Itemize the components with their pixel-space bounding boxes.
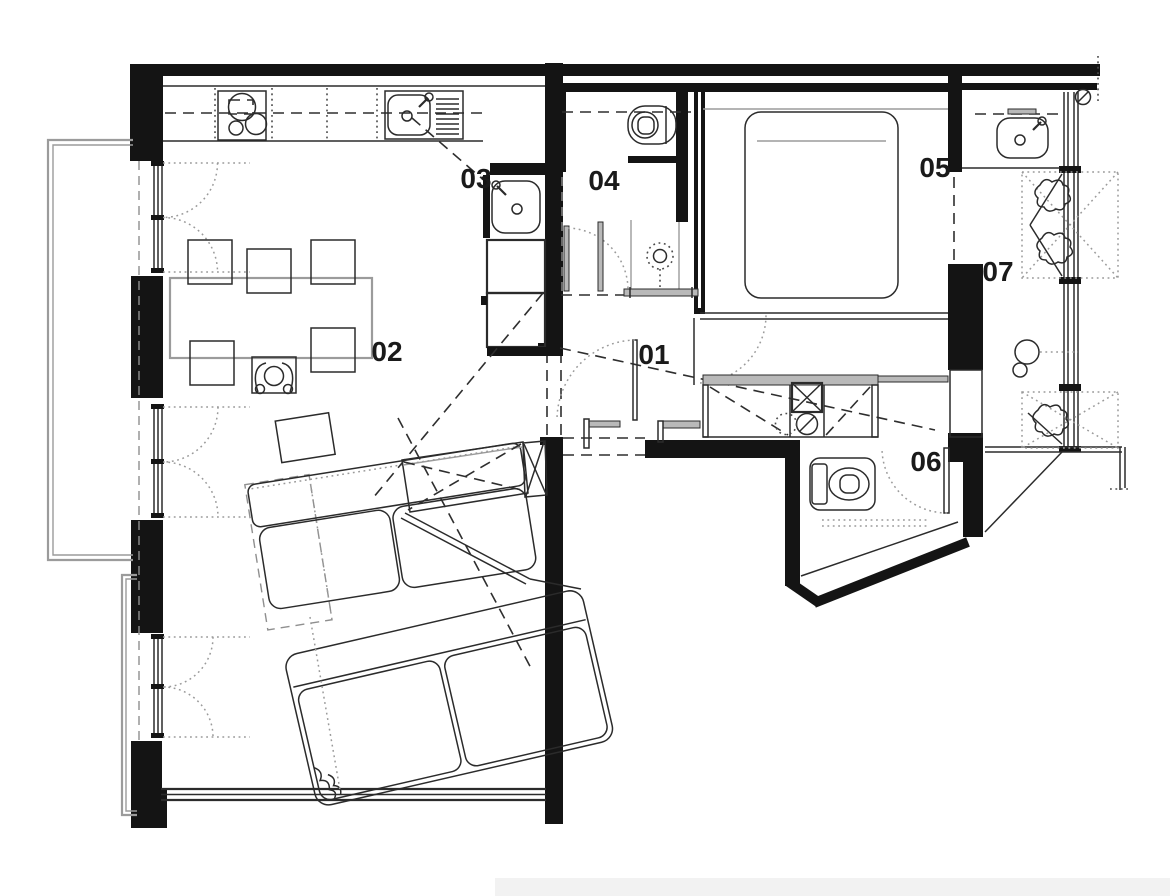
- side-table: [523, 441, 547, 497]
- plant-icon: [1035, 180, 1070, 211]
- walls: [130, 56, 1130, 828]
- room-label-bedroom: 05: [919, 152, 950, 183]
- room-label-bathroom: 04: [588, 165, 620, 196]
- casement-window-icon: [151, 161, 250, 273]
- dining-set: [170, 240, 372, 394]
- utility-basin-icon: [492, 181, 540, 233]
- floor-plan: 01 02 03 04 05 06 07: [0, 0, 1170, 896]
- loggia: [962, 90, 1118, 533]
- washing-machine-icon: [792, 383, 822, 412]
- seated-person-icon: [252, 357, 296, 394]
- room-label-loggia: 07: [982, 256, 1013, 287]
- room-label-hallway: 01: [638, 339, 669, 370]
- drainer-icon: [436, 99, 459, 134]
- kitchen-sink-icon: [385, 91, 463, 139]
- dryer-icon: [776, 414, 818, 435]
- bathroom-door: [564, 222, 628, 291]
- toilet-icon-2: [810, 458, 875, 510]
- room-label-wc: 06: [910, 446, 941, 477]
- bench: [624, 287, 698, 298]
- bedroom: [694, 109, 948, 385]
- plant-window-bay-1: [1022, 172, 1118, 278]
- plant-window-bay-2: [1022, 392, 1118, 448]
- floor-plan-canvas: 01 02 03 04 05 06 07: [0, 0, 1170, 896]
- kitchen-counter: [163, 88, 494, 189]
- hall-door: [557, 340, 637, 420]
- shower-glass-panel: [598, 222, 603, 291]
- cooktop-icon: [218, 91, 267, 140]
- washbasin-icon: [962, 109, 1060, 168]
- balcony: [48, 140, 133, 560]
- scan-artifact: [495, 878, 1170, 896]
- loggia-edge: [985, 452, 1062, 532]
- double-bed: [745, 112, 898, 298]
- casement-window-icon: [151, 404, 250, 518]
- shower-head-icon: [647, 243, 673, 291]
- base-cabinets: [481, 240, 545, 347]
- room-label-living-dining: 02: [371, 336, 402, 367]
- casement-window-icon: [151, 634, 250, 738]
- room-label-kitchen: 03: [460, 163, 491, 194]
- plant-icon: [1037, 233, 1072, 264]
